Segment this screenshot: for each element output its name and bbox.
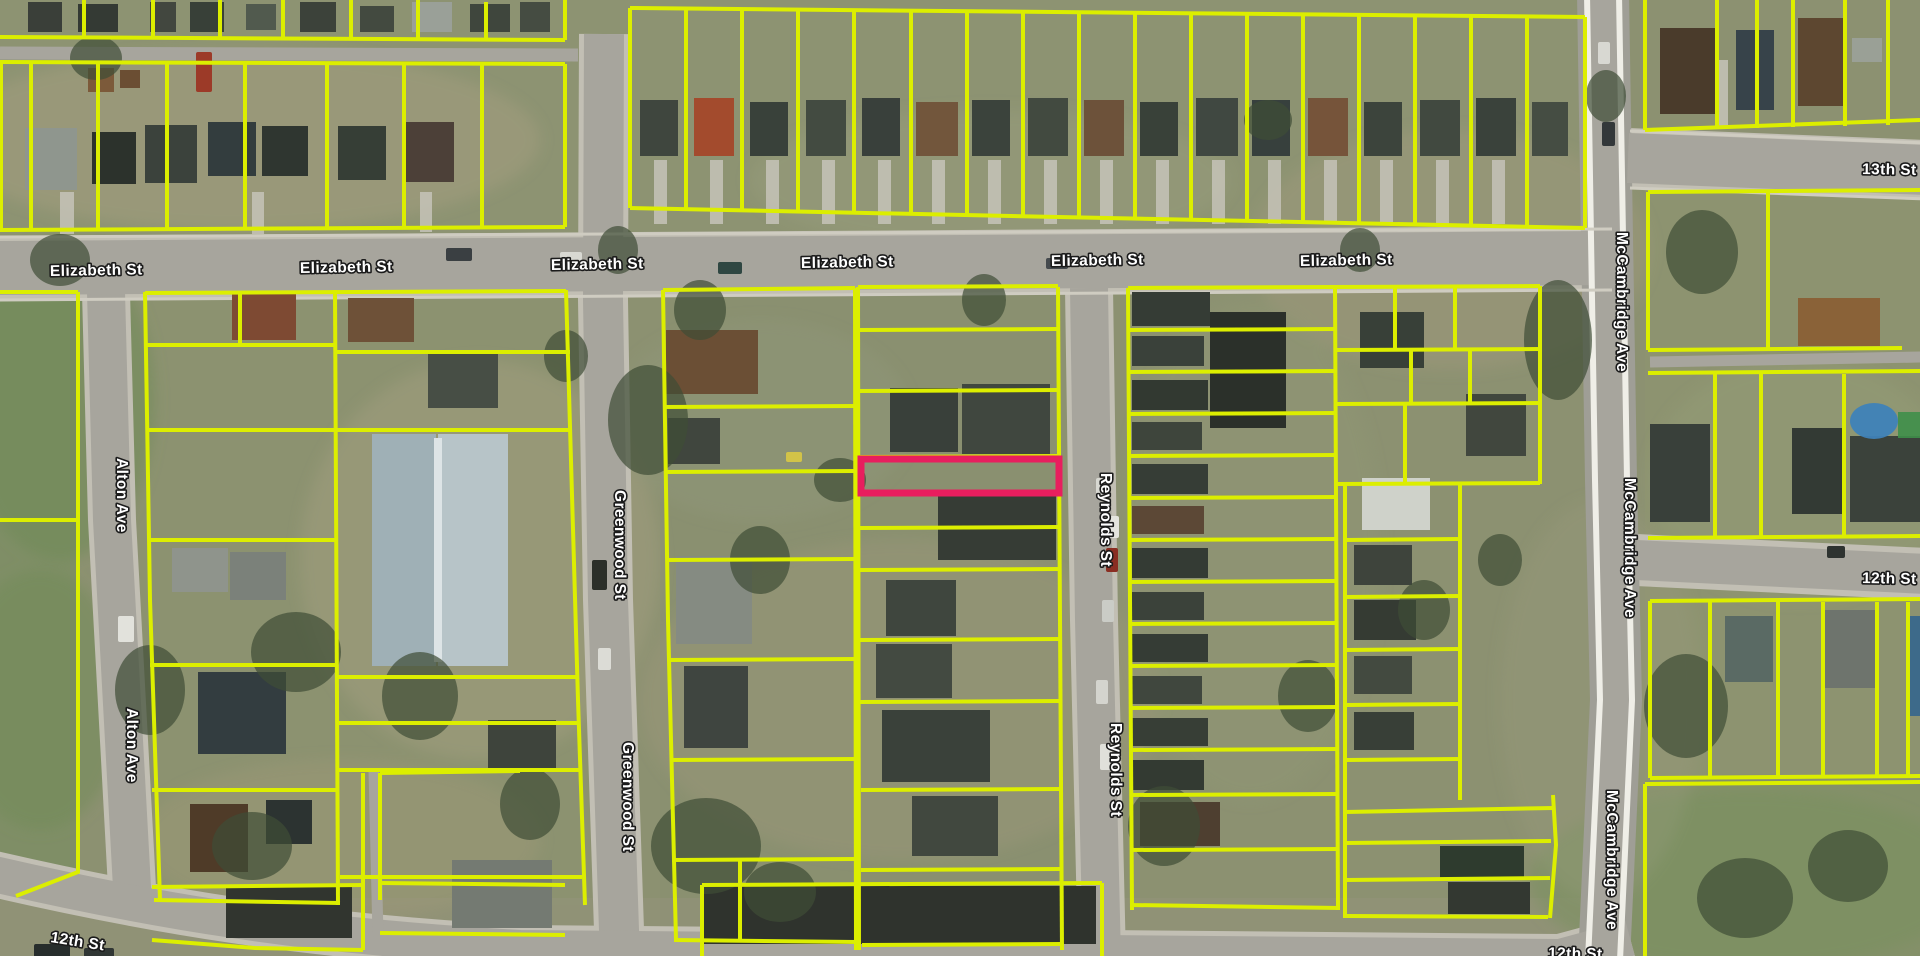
building xyxy=(1028,98,1068,156)
parcel-boundary[interactable] xyxy=(858,287,859,950)
vehicle xyxy=(118,616,134,642)
building xyxy=(1354,712,1414,750)
parcel-boundary[interactable] xyxy=(1335,483,1540,484)
building xyxy=(962,384,1050,454)
parcel-boundary[interactable] xyxy=(1129,497,1336,498)
parcel-boundary[interactable] xyxy=(664,471,855,472)
building xyxy=(226,886,352,938)
building xyxy=(1448,882,1530,914)
street-label-mccambridge-ave: McCambridge Ave xyxy=(1613,232,1630,372)
building xyxy=(246,4,276,30)
map-viewport[interactable]: Elizabeth StElizabeth StElizabeth StEliz… xyxy=(0,0,1920,956)
building xyxy=(1354,656,1412,694)
building xyxy=(1364,102,1402,156)
building xyxy=(300,2,336,32)
building xyxy=(1132,464,1208,494)
building xyxy=(1132,422,1202,450)
building xyxy=(750,102,788,156)
aerial-map[interactable]: Elizabeth StElizabeth StElizabeth StEliz… xyxy=(0,0,1920,956)
building xyxy=(1650,424,1710,522)
parcel-boundary[interactable] xyxy=(1648,371,1920,373)
building xyxy=(1132,718,1208,746)
building xyxy=(1825,610,1879,688)
parcel-boundary[interactable] xyxy=(860,639,1060,640)
building xyxy=(1132,380,1208,410)
vehicle xyxy=(786,452,802,462)
building xyxy=(120,70,140,88)
parcel-boundary[interactable] xyxy=(1346,878,1550,880)
parcel-boundary[interactable] xyxy=(862,944,1062,945)
parcel-boundary[interactable] xyxy=(1648,190,1920,192)
building xyxy=(1132,676,1202,704)
parcel-boundary[interactable] xyxy=(1347,704,1460,705)
parcel-boundary[interactable] xyxy=(666,559,855,560)
building xyxy=(890,388,958,452)
parcel-boundary[interactable] xyxy=(1130,581,1336,582)
building xyxy=(876,644,952,698)
building xyxy=(1084,100,1124,156)
building xyxy=(372,434,436,666)
building xyxy=(1852,38,1882,62)
building xyxy=(470,4,510,32)
building xyxy=(912,796,998,856)
parcel-boundary[interactable] xyxy=(1129,455,1336,456)
building xyxy=(262,126,308,176)
parcel-boundary[interactable] xyxy=(1346,649,1460,650)
building xyxy=(434,438,442,662)
building xyxy=(1196,98,1238,156)
building xyxy=(684,666,748,748)
building xyxy=(1798,298,1880,346)
parcel-boundary[interactable] xyxy=(1129,371,1336,372)
parcel-boundary[interactable] xyxy=(1650,776,1920,778)
street-label-alton-ave: Alton Ave xyxy=(123,708,140,783)
building xyxy=(1850,436,1920,522)
building xyxy=(1132,336,1204,366)
parcel-boundary[interactable] xyxy=(1648,536,1920,538)
parcel-boundary[interactable] xyxy=(1130,665,1337,666)
building xyxy=(1140,102,1178,156)
building xyxy=(1532,102,1568,156)
vehicle xyxy=(196,52,212,92)
parcel-boundary[interactable] xyxy=(380,771,520,773)
building xyxy=(452,860,552,928)
street-label-elizabeth-st: Elizabeth St xyxy=(300,258,393,277)
building xyxy=(1132,506,1204,534)
building xyxy=(916,102,958,156)
building xyxy=(1132,760,1204,790)
building xyxy=(488,720,556,768)
building xyxy=(1132,634,1208,662)
street-label-12th-st: 12th St xyxy=(1862,570,1917,588)
street-label-elizabeth-st: Elizabeth St xyxy=(801,253,894,272)
parcel-boundary[interactable] xyxy=(1129,413,1336,414)
parcel-boundary[interactable] xyxy=(1131,849,1338,850)
parcel-boundary[interactable] xyxy=(152,885,363,887)
building xyxy=(520,2,550,32)
building xyxy=(806,100,846,156)
street-label-alton-ave: Alton Ave xyxy=(113,458,130,533)
street-label-greenwood-st: Greenwood St xyxy=(611,490,628,600)
building xyxy=(882,710,990,782)
building xyxy=(1360,312,1424,368)
building xyxy=(1132,292,1210,326)
parcel-boundary[interactable] xyxy=(1347,759,1460,760)
street-label-elizabeth-st: Elizabeth St xyxy=(1051,251,1144,270)
parcel-boundary[interactable] xyxy=(380,933,565,935)
building xyxy=(438,434,508,666)
parcel-boundary[interactable] xyxy=(858,390,1058,391)
vehicle xyxy=(718,262,742,274)
building xyxy=(1420,100,1460,156)
street-label-elizabeth-st: Elizabeth St xyxy=(551,255,644,274)
parcel-boundary[interactable] xyxy=(860,701,1060,702)
parcel-boundary[interactable] xyxy=(145,291,566,293)
building xyxy=(862,98,900,156)
building xyxy=(666,330,758,394)
parcel-boundary[interactable] xyxy=(1131,794,1337,795)
street-label-reynolds-st: Reynolds St xyxy=(1097,473,1114,567)
street-label-elizabeth-st: Elizabeth St xyxy=(1300,251,1393,270)
building xyxy=(1132,592,1204,620)
parcel-boundary[interactable] xyxy=(672,859,856,860)
parcel-boundary[interactable] xyxy=(702,883,1102,885)
parcel-boundary[interactable] xyxy=(855,288,856,950)
building xyxy=(402,122,454,182)
building xyxy=(338,126,386,180)
parcel-boundary[interactable] xyxy=(1335,349,1540,350)
building xyxy=(28,2,62,32)
parcel-boundary[interactable] xyxy=(1130,707,1337,708)
building xyxy=(1354,545,1412,585)
building xyxy=(1476,98,1516,156)
parcel-boundary[interactable] xyxy=(1129,329,1336,330)
vehicle xyxy=(598,648,611,670)
parcel-boundary[interactable] xyxy=(668,659,856,660)
vehicle xyxy=(1096,680,1108,704)
building xyxy=(360,6,394,32)
street-label-mccambridge-ave: McCambridge Ave xyxy=(1603,790,1620,930)
parcel-boundary[interactable] xyxy=(858,329,1058,330)
swimming-pool xyxy=(1850,403,1898,439)
reynolds-st-road xyxy=(1089,288,1102,956)
trampoline xyxy=(1898,412,1920,438)
parcel-boundary[interactable] xyxy=(1650,599,1920,601)
vehicle xyxy=(1102,600,1114,622)
street-label-mccambridge-ave: McCambridge Ave xyxy=(1621,478,1638,618)
street-label-reynolds-st: Reynolds St xyxy=(1107,723,1124,817)
building xyxy=(208,122,256,176)
parcel-boundary[interactable] xyxy=(1346,596,1460,597)
vehicle xyxy=(1598,42,1610,64)
parcel-boundary[interactable] xyxy=(663,406,855,407)
alley-ne-road xyxy=(1650,357,1920,362)
parcel-boundary[interactable] xyxy=(1335,403,1540,404)
building xyxy=(694,98,734,156)
street-label-elizabeth-st: Elizabeth St xyxy=(50,261,143,280)
building xyxy=(886,580,956,636)
building xyxy=(1798,18,1844,106)
building xyxy=(1440,846,1524,878)
parcel-boundary[interactable] xyxy=(859,527,1059,528)
vehicle xyxy=(446,248,472,261)
street-label-greenwood-st: Greenwood St xyxy=(619,742,636,852)
building xyxy=(1308,98,1348,156)
parcel-boundary[interactable] xyxy=(1131,749,1337,750)
building xyxy=(640,100,678,156)
building xyxy=(1660,28,1718,114)
building xyxy=(145,125,197,183)
parcel-boundary[interactable] xyxy=(1345,539,1460,540)
parcel-boundary[interactable] xyxy=(1645,782,1920,784)
parcel-boundary[interactable] xyxy=(861,869,1061,870)
parcel-boundary[interactable] xyxy=(861,789,1061,790)
parcel-boundary[interactable] xyxy=(1347,916,1548,917)
parcel-boundary[interactable] xyxy=(1648,348,1902,350)
parcel-boundary[interactable] xyxy=(1130,539,1336,540)
parcel-boundary[interactable] xyxy=(663,288,855,290)
building xyxy=(348,298,414,342)
street-label-13th-st: 13th St xyxy=(1862,161,1917,179)
parcel-boundary[interactable] xyxy=(670,759,856,760)
parcel-boundary[interactable] xyxy=(858,286,1058,287)
street-label-12th-st: 12th St xyxy=(1548,945,1603,956)
parcel-boundary[interactable] xyxy=(380,883,565,885)
vehicle xyxy=(1827,546,1845,558)
building xyxy=(1725,616,1773,682)
parcel-boundary[interactable] xyxy=(0,62,565,64)
parcel-boundary[interactable] xyxy=(1128,286,1540,288)
vehicle xyxy=(1602,122,1615,146)
alley-bottom-road xyxy=(374,770,378,936)
building xyxy=(172,548,228,592)
building xyxy=(972,100,1010,156)
parcel-boundary[interactable] xyxy=(860,569,1060,570)
building xyxy=(428,352,498,408)
building xyxy=(230,552,286,600)
parcel-boundary[interactable] xyxy=(1345,841,1551,843)
parcel-boundary[interactable] xyxy=(1130,623,1337,624)
building xyxy=(1132,548,1208,578)
vehicle xyxy=(592,560,607,590)
building xyxy=(1792,428,1842,514)
